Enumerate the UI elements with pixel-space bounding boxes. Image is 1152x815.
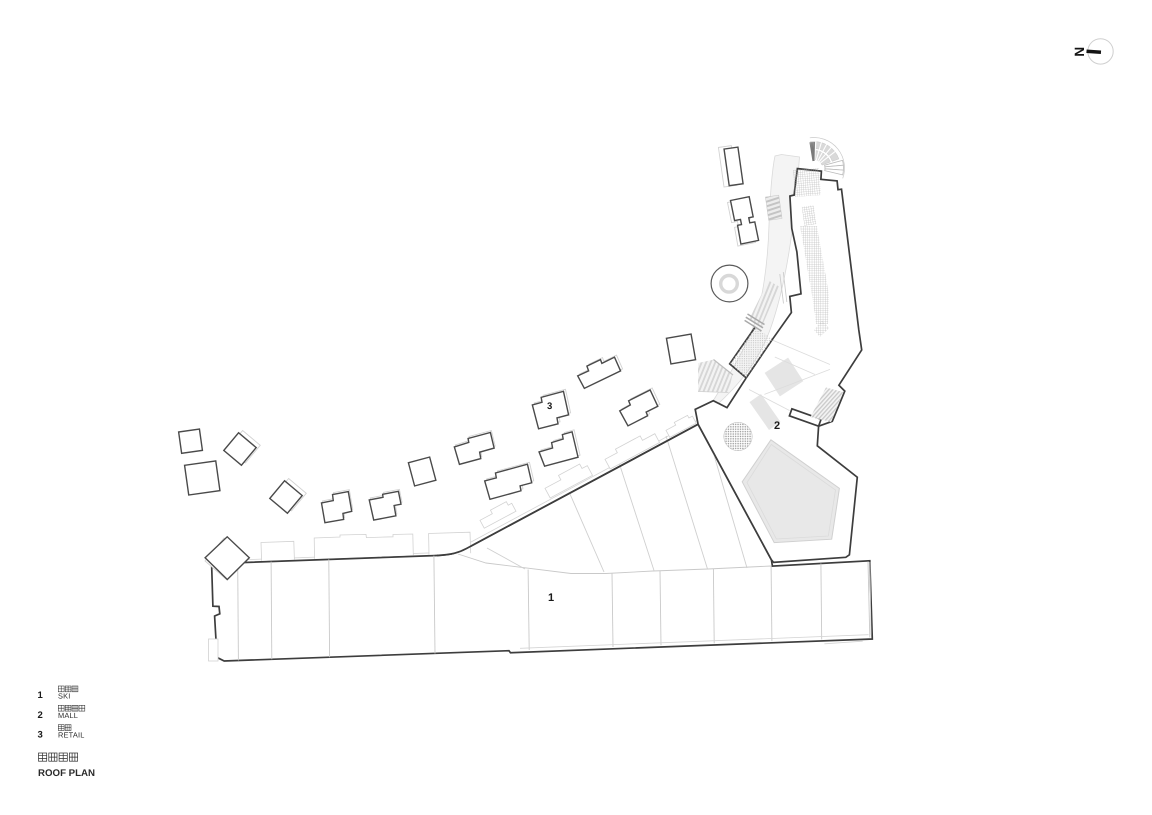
svg-text:2: 2 xyxy=(774,420,780,432)
svg-text:3: 3 xyxy=(547,401,552,412)
svg-text:1: 1 xyxy=(38,690,44,701)
svg-text:N: N xyxy=(1072,47,1087,57)
svg-text:1: 1 xyxy=(548,592,554,604)
svg-text:RETAIL: RETAIL xyxy=(58,731,85,740)
svg-text:3: 3 xyxy=(38,730,43,741)
svg-text:MALL: MALL xyxy=(58,711,78,720)
svg-text:2: 2 xyxy=(38,710,43,721)
svg-text:SKI: SKI xyxy=(58,692,71,701)
svg-text:ROOF PLAN: ROOF PLAN xyxy=(38,768,95,779)
